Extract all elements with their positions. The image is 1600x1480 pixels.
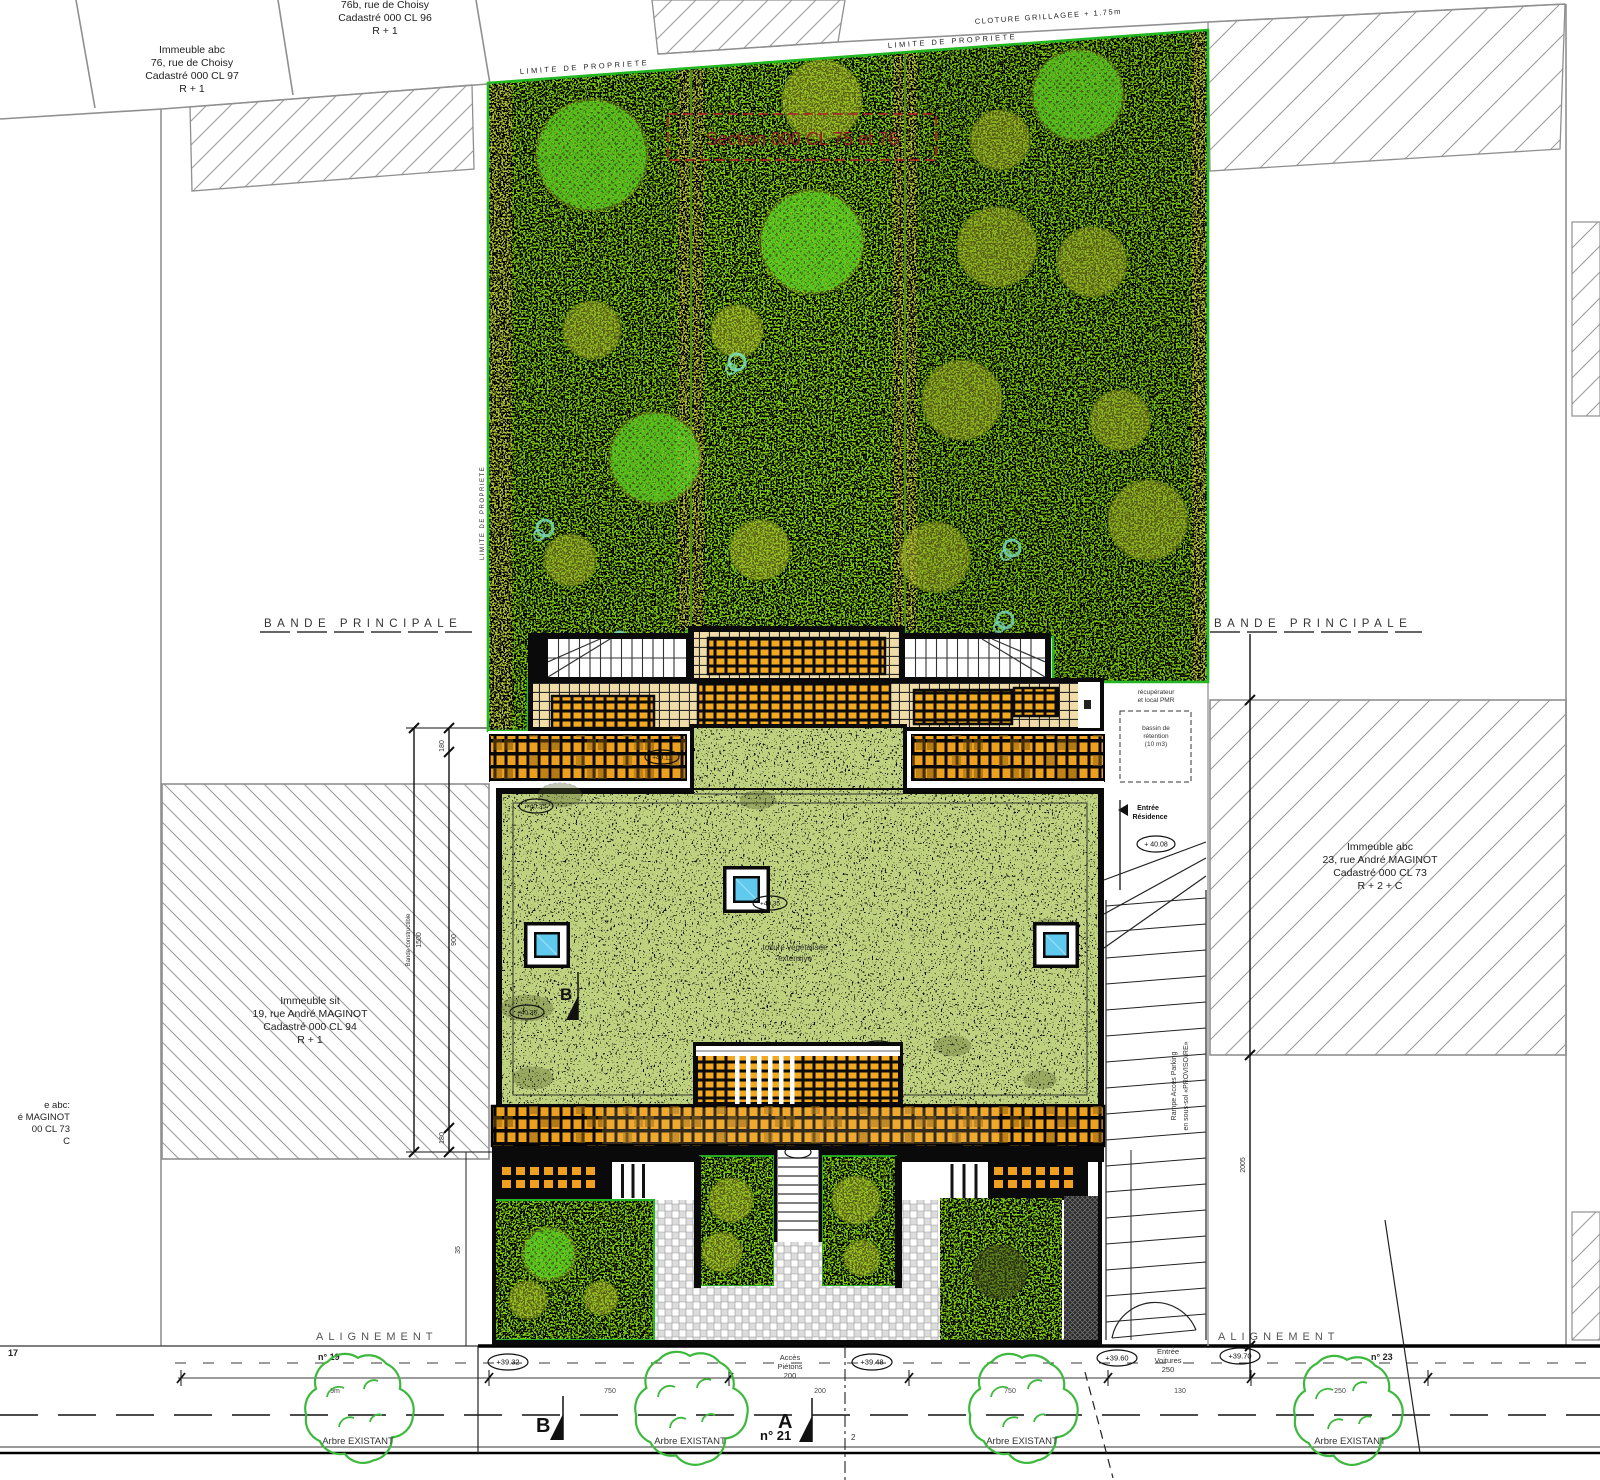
svg-text:180: 180	[439, 1132, 446, 1144]
svg-text:B: B	[536, 1415, 550, 1437]
svg-text:A: A	[778, 1411, 792, 1433]
svg-text:750: 750	[604, 1388, 616, 1395]
svg-text:toiture végétalisée: toiture végétalisée	[763, 943, 828, 952]
svg-text:130: 130	[1174, 1388, 1186, 1395]
svg-text:"extensive": "extensive"	[775, 954, 815, 963]
svg-text:Entrée: Entrée	[1137, 805, 1159, 812]
svg-text:Arbre EXISTANT: Arbre EXISTANT	[654, 1436, 726, 1447]
svg-text:R + 1: R + 1	[179, 83, 205, 95]
svg-text:R + 2 + C: R + 2 + C	[1358, 880, 1403, 892]
svg-text:é MAGINOT: é MAGINOT	[18, 1112, 70, 1123]
svg-text:900: 900	[451, 934, 458, 946]
svg-text:200: 200	[814, 1388, 826, 1395]
svg-text:23, rue André MAGINOT: 23, rue André MAGINOT	[1323, 854, 1439, 866]
svg-text:250: 250	[1334, 1388, 1346, 1395]
svg-text:180: 180	[439, 740, 446, 752]
svg-text:R + 1: R + 1	[372, 25, 398, 37]
svg-text:00 CL 73: 00 CL 73	[32, 1124, 70, 1135]
svg-text:250: 250	[1162, 1365, 1175, 1374]
svg-text:1500: 1500	[416, 932, 423, 948]
svg-text:en sous-sol «PROVISOIRE»: en sous-sol «PROVISOIRE»	[1183, 1041, 1190, 1130]
svg-text:ALIGNEMENT: ALIGNEMENT	[1218, 1331, 1340, 1343]
svg-text:17: 17	[8, 1348, 18, 1358]
svg-text:Entrée: Entrée	[1157, 1347, 1179, 1356]
svg-text:Cadastré 000 CL 73: Cadastré 000 CL 73	[1333, 867, 1427, 879]
svg-text:Piétons: Piétons	[777, 1362, 802, 1371]
svg-text:+40.35: +40.35	[760, 901, 780, 908]
svg-text:+ 40.08: + 40.08	[1144, 842, 1168, 849]
svg-text:et local PMR: et local PMR	[1138, 697, 1175, 704]
svg-text:+40.35: +40.35	[526, 804, 546, 811]
svg-text:rétention: rétention	[1143, 733, 1169, 740]
svg-text:Cadastré 000 CL 97: Cadastré 000 CL 97	[145, 70, 239, 82]
svg-text:Immeuble abc: Immeuble abc	[159, 44, 225, 56]
svg-text:n° 23: n° 23	[1371, 1352, 1393, 1362]
svg-text:Immeuble abc: Immeuble abc	[1347, 841, 1413, 853]
svg-text:Arbre EXISTANT: Arbre EXISTANT	[1314, 1436, 1386, 1447]
svg-text:76b, rue de Choisy: 76b, rue de Choisy	[341, 0, 430, 11]
svg-text:récupérateur: récupérateur	[1138, 689, 1176, 696]
svg-text:+40.35: +40.35	[517, 1010, 537, 1017]
svg-text:2005: 2005	[1240, 1157, 1247, 1173]
svg-text:Voitures: Voitures	[1154, 1356, 1181, 1365]
svg-text:LIMITE DE PROPRIETE: LIMITE DE PROPRIETE	[480, 466, 486, 560]
svg-text:+40.11: +40.11	[652, 755, 672, 762]
svg-text:Résidence: Résidence	[1132, 814, 1167, 821]
svg-text:Arbre EXISTANT: Arbre EXISTANT	[322, 1436, 394, 1447]
svg-text:+39.32: +39.32	[496, 1358, 519, 1367]
svg-text:BANDE PRINCIPALE: BANDE PRINCIPALE	[1214, 618, 1412, 630]
svg-text:R + 1: R + 1	[297, 1034, 323, 1046]
svg-text:(10 m3): (10 m3)	[1145, 741, 1167, 748]
svg-text:+39.60: +39.60	[1105, 1354, 1128, 1363]
svg-text:750: 750	[1004, 1388, 1016, 1395]
svg-text:76, rue de Choisy: 76, rue de Choisy	[151, 57, 234, 69]
svg-text:bassin de: bassin de	[1142, 725, 1170, 732]
svg-text:+39.48: +39.48	[860, 1358, 883, 1367]
svg-text:Arbre EXISTANT: Arbre EXISTANT	[986, 1436, 1058, 1447]
svg-text:e abc:: e abc:	[44, 1100, 70, 1111]
svg-text:ALIGNEMENT: ALIGNEMENT	[316, 1331, 438, 1343]
svg-text:Immeuble sit: Immeuble sit	[280, 995, 340, 1007]
svg-text:35: 35	[455, 1246, 462, 1254]
svg-text:200: 200	[784, 1371, 797, 1380]
svg-text:2: 2	[851, 1433, 856, 1442]
svg-text:Cadastré 000 CL 96: Cadastré 000 CL 96	[338, 12, 432, 24]
svg-text:Bande constructible: Bande constructible	[406, 913, 412, 966]
svg-text:Rampe Accès Parking: Rampe Accès Parking	[1171, 1051, 1178, 1120]
svg-text:C: C	[63, 1136, 70, 1147]
svg-text:+39.70: +39.70	[1228, 1352, 1251, 1361]
svg-text:Cadastré 000 CL 94: Cadastré 000 CL 94	[263, 1021, 357, 1033]
svg-text:Accès: Accès	[780, 1353, 801, 1362]
svg-text:B: B	[560, 985, 572, 1004]
svg-text:Section 000 CL 75 et 76: Section 000 CL 75 et 76	[706, 129, 898, 149]
svg-text:BANDE PRINCIPALE: BANDE PRINCIPALE	[264, 618, 462, 630]
svg-text:19, rue André MAGINOT: 19, rue André MAGINOT	[253, 1008, 369, 1020]
